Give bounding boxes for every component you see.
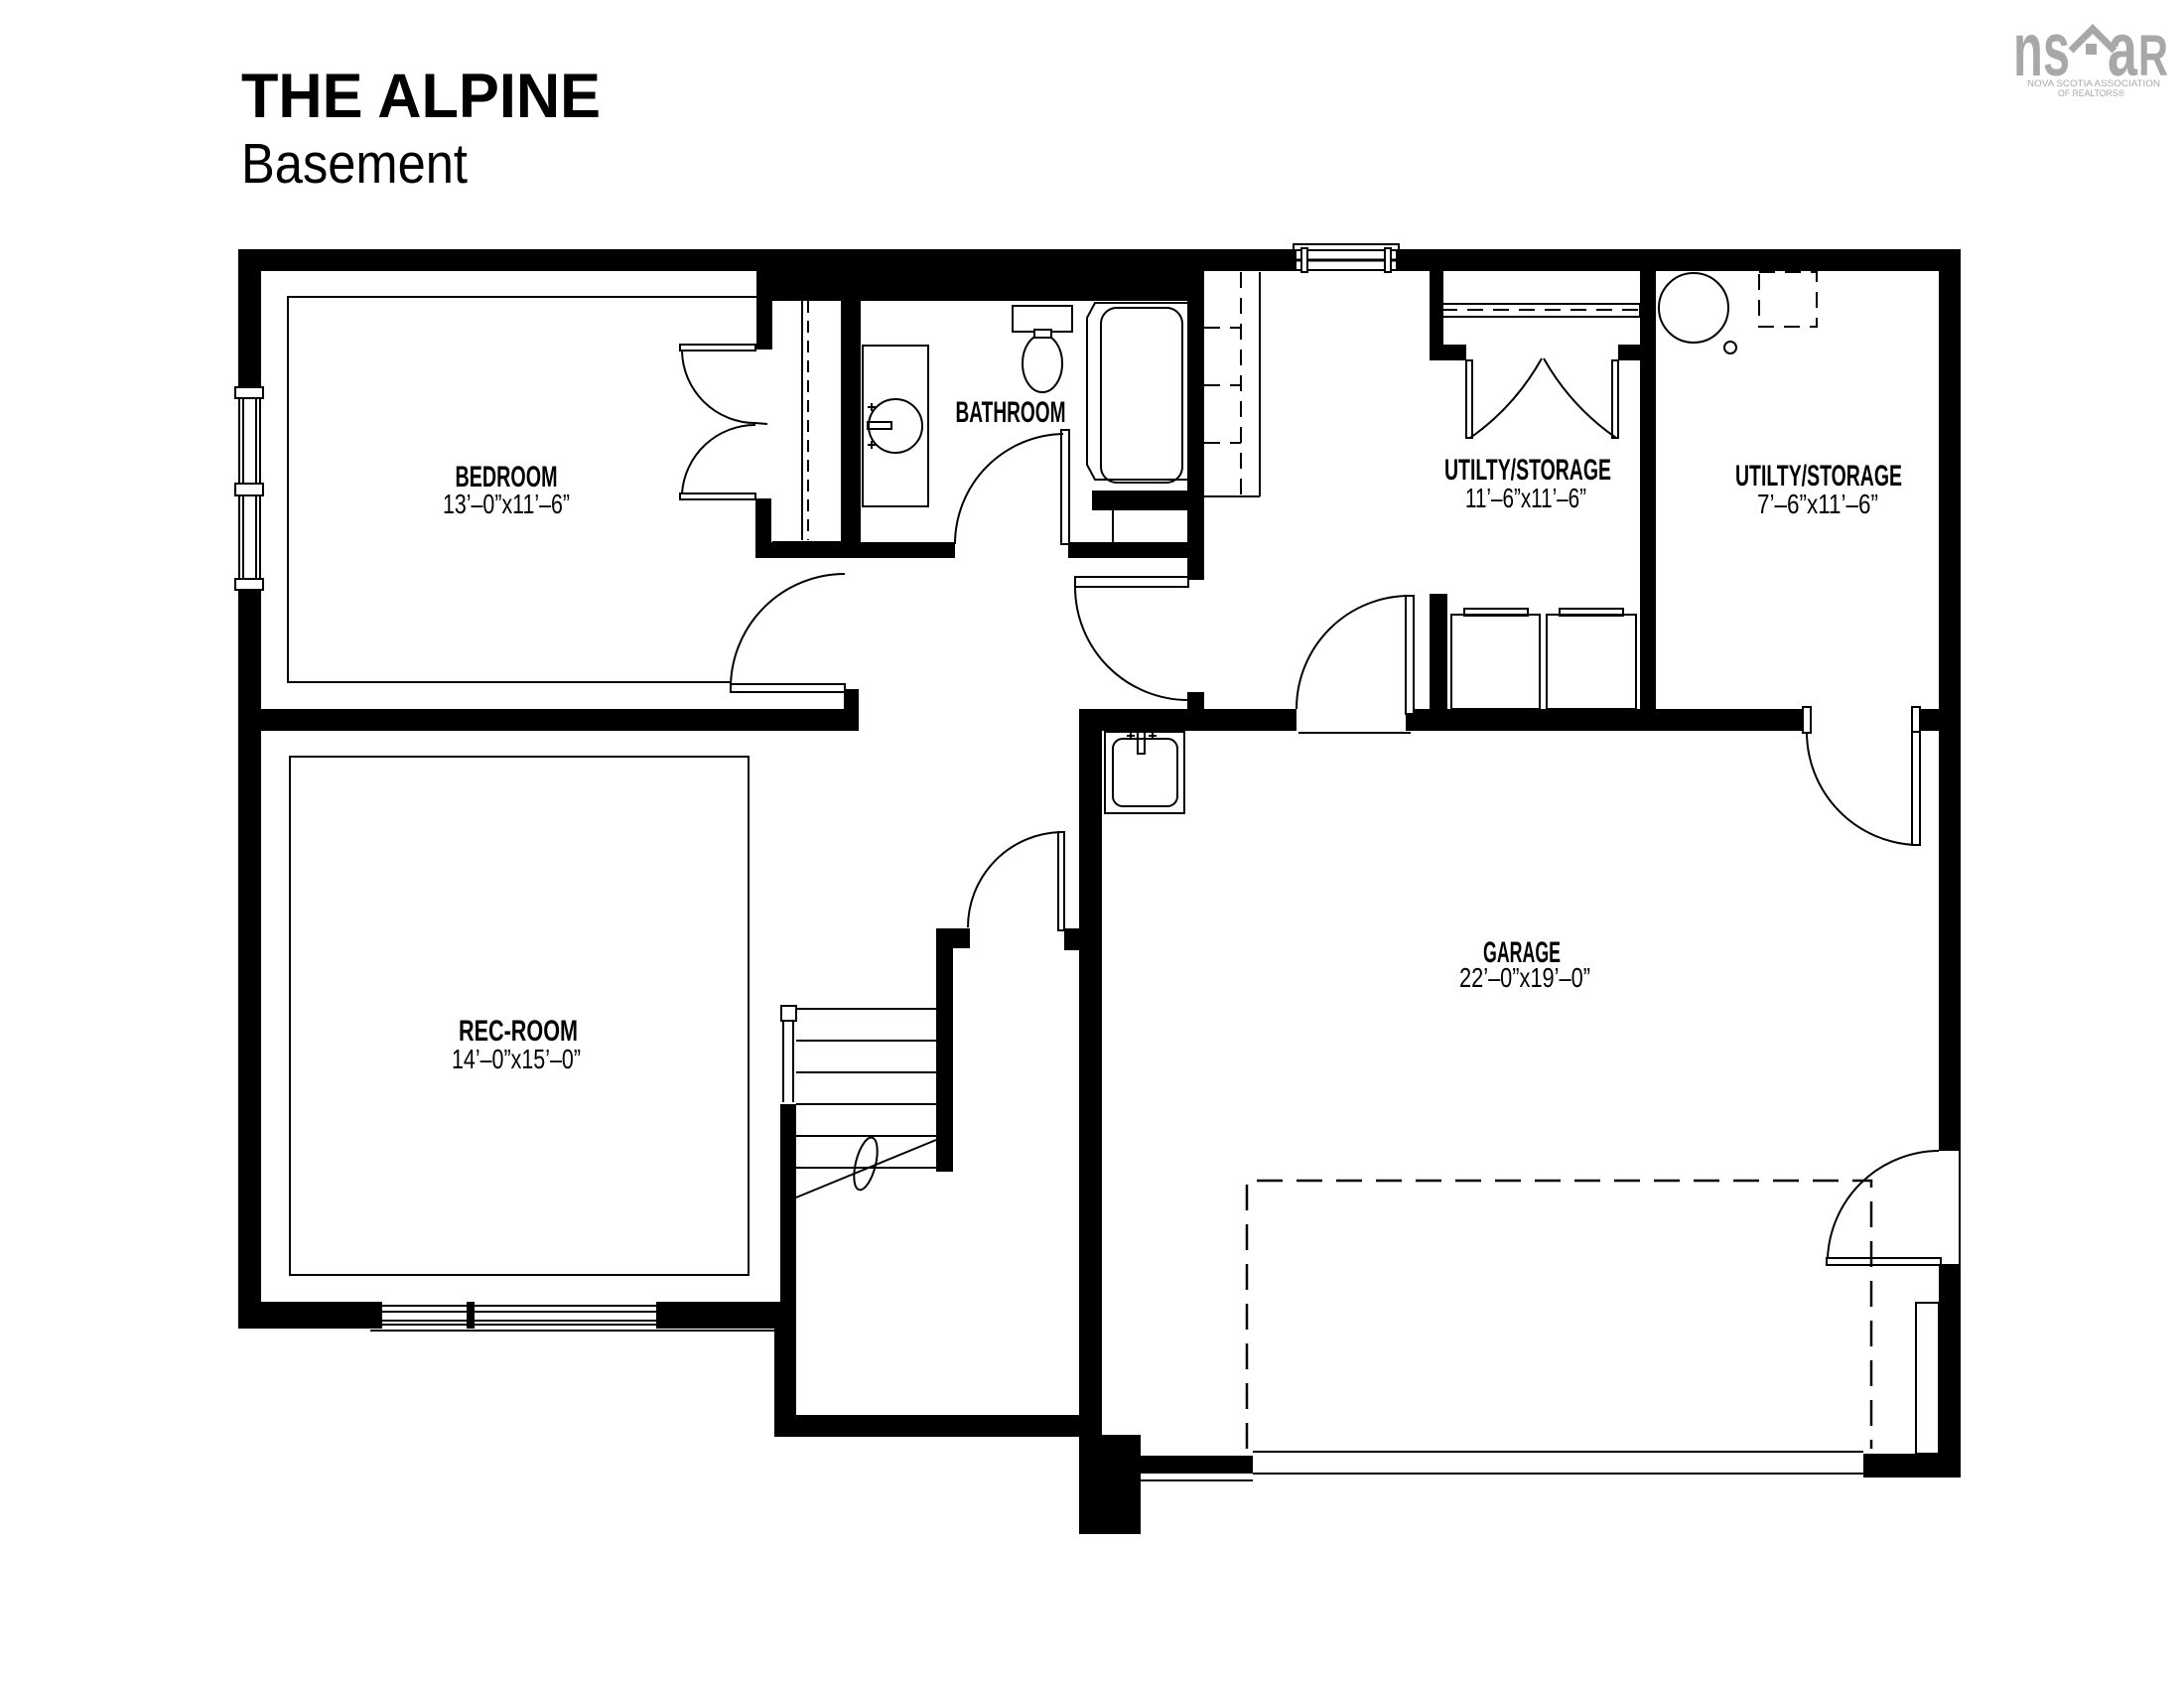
- svg-text:14’–0”x15’–0”: 14’–0”x15’–0”: [452, 1044, 581, 1074]
- svg-text:11’–6”x11’–6”: 11’–6”x11’–6”: [1465, 483, 1586, 513]
- svg-text:13’–0”x11’–6”: 13’–0”x11’–6”: [443, 489, 570, 519]
- svg-text:BATHROOM: BATHROOM: [956, 396, 1066, 429]
- svg-text:OF REALTORS®: OF REALTORS®: [2058, 88, 2124, 99]
- svg-text:THE ALPINE: THE ALPINE: [241, 62, 601, 131]
- svg-text:Basement: Basement: [241, 132, 468, 196]
- svg-text:7’–6”x11’–6”: 7’–6”x11’–6”: [1757, 489, 1878, 519]
- svg-text:22’–0”x19’–0”: 22’–0”x19’–0”: [1459, 962, 1590, 993]
